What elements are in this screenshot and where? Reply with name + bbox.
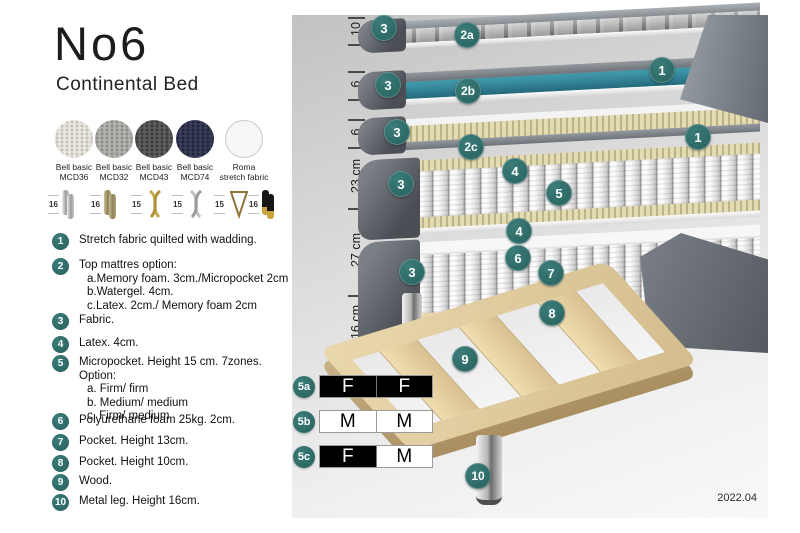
legend-item-9: 9 Wood. xyxy=(52,475,298,491)
legend-number: 6 xyxy=(52,413,69,430)
leg-height: 15 xyxy=(131,195,142,214)
fabric-swatch-image xyxy=(95,120,133,158)
legend-number: 3 xyxy=(52,313,69,330)
legend-label: Pocket. Height 13cm. xyxy=(79,435,188,451)
legend-number: 10 xyxy=(52,494,69,511)
firmness-cell: F xyxy=(320,376,377,397)
firmness-row-5b: 5b M M xyxy=(293,410,433,433)
legend-item-1: 1 Stretch fabric quilted with wadding. xyxy=(52,234,298,250)
legend-label: Pocket. Height 10cm. xyxy=(79,456,188,472)
diagram-badge-1: 1 xyxy=(649,57,675,83)
diagram-badge-3: 3 xyxy=(388,171,414,197)
leg-height: 15 xyxy=(214,195,225,214)
firmness-badge: 5a xyxy=(293,376,315,398)
firmness-cell: M xyxy=(377,411,433,432)
leg-option-gold-twist: 15 xyxy=(131,186,165,222)
legend-number: 9 xyxy=(52,474,69,491)
legend-number: 5 xyxy=(52,355,69,372)
chrome-leg-icon xyxy=(62,190,74,219)
fabric-swatch-image xyxy=(55,120,93,158)
diagram-badge-3: 3 xyxy=(384,119,410,145)
diagram-badge-1: 1 xyxy=(685,124,711,150)
fabric-swatch: Bell basicMCD74 xyxy=(175,120,215,182)
mattress-fabric-corner xyxy=(358,157,420,240)
legend-label: Fabric. xyxy=(79,314,114,330)
legend-item-7: 7 Pocket. Height 13cm. xyxy=(52,435,298,451)
legend-number: 4 xyxy=(52,336,69,353)
swatch-label: Bell basic xyxy=(177,162,213,172)
legend-label: Top mattres option: xyxy=(79,259,288,273)
legend-number: 2 xyxy=(52,258,69,275)
legend-sub-option: b.Watergel. 4cm. xyxy=(87,286,288,300)
swatch-label: Roma xyxy=(233,162,256,172)
leg-height: 16 xyxy=(48,195,59,214)
leg-option-wood: 16 xyxy=(90,186,116,222)
leg-height: 16 xyxy=(248,195,259,214)
diagram-badge-4: 4 xyxy=(506,218,532,244)
legend-item-6: 6 Polyurethane foam 25kg. 2cm. xyxy=(52,414,298,430)
fabric-swatch-image xyxy=(225,120,263,158)
legend-number: 1 xyxy=(52,233,69,250)
gold-twisted-leg-icon xyxy=(145,189,165,219)
diagram-badge-7: 7 xyxy=(538,260,564,286)
leg-option-silver-twist: 15 xyxy=(172,186,206,222)
legend-item-10: 10 Metal leg. Height 16cm. xyxy=(52,495,298,511)
legend-number: 8 xyxy=(52,455,69,472)
legend-item-4: 4 Latex. 4cm. xyxy=(52,337,298,353)
legend-label: Polyurethane foam 25kg. 2cm. xyxy=(79,414,235,430)
diagram-badge-2c: 2c xyxy=(458,134,484,160)
legend-label: Latex. 4cm. xyxy=(79,337,138,353)
legend-sub-option: b. Medium/ medium xyxy=(87,397,298,411)
fabric-swatch-image xyxy=(176,120,214,158)
legend-sub-option: c.Latex. 2cm./ Memory foam 2cm xyxy=(87,300,288,314)
firmness-row-5c: 5c F M xyxy=(293,445,433,468)
leg-height: 16 xyxy=(90,195,101,214)
black-gold-leg-icon xyxy=(262,190,274,219)
legend-number: 7 xyxy=(52,434,69,451)
version-date: 2022.04 xyxy=(717,492,757,504)
firmness-cell: F xyxy=(320,446,377,467)
firmness-badge: 5c xyxy=(293,446,315,468)
firmness-row-5a: 5a F F xyxy=(293,375,433,398)
diagram-badge-3: 3 xyxy=(375,72,401,98)
diagram-badge-3: 3 xyxy=(399,259,425,285)
firmness-badge: 5b xyxy=(293,411,315,433)
diagram-badge-9: 9 xyxy=(452,346,478,372)
diagram-badge-2b: 2b xyxy=(455,78,481,104)
firmness-cell: M xyxy=(320,411,377,432)
legend-label: Micropocket. Height 15 cm. 7zones. Optio… xyxy=(79,356,298,383)
legend-item-3: 3 Fabric. xyxy=(52,314,298,330)
firmness-cell: F xyxy=(377,376,433,397)
exploded-diagram-panel: 10 6 6 23 cm 27 cm 16 cm xyxy=(292,15,768,518)
silver-twisted-leg-icon xyxy=(186,189,206,219)
page-title: No6 xyxy=(54,16,149,71)
wood-leg-icon xyxy=(104,190,116,219)
diagram-badge-5: 5 xyxy=(546,180,572,206)
legend-item-8: 8 Pocket. Height 10cm. xyxy=(52,456,298,472)
legend-item-2: 2 Top mattres option: a.Memory foam. 3cm… xyxy=(52,259,298,313)
page-subtitle: Continental Bed xyxy=(56,74,199,96)
leg-option-chrome: 16 xyxy=(48,186,74,222)
diagram-badge-8: 8 xyxy=(539,300,565,326)
firmness-cell: M xyxy=(377,446,433,467)
legend-label: Wood. xyxy=(79,475,112,491)
fabric-swatch-image xyxy=(135,120,173,158)
diagram-badge-10: 10 xyxy=(465,463,491,489)
fabric-swatch: Romastretch fabric xyxy=(224,120,264,182)
legend-sub-option: a.Memory foam. 3cm./Micropocket 2cm xyxy=(87,273,288,287)
legend-sub-option: a. Firm/ firm xyxy=(87,383,298,397)
legend-label: Metal leg. Height 16cm. xyxy=(79,495,200,511)
legend-label: Stretch fabric quilted with wadding. xyxy=(79,234,257,250)
leg-option-hairpin: 15 xyxy=(214,186,250,222)
leg-height: 15 xyxy=(172,195,183,214)
leg-option-black-gold: 16 xyxy=(248,186,274,222)
diagram-badge-3: 3 xyxy=(371,15,397,41)
hairpin-leg-icon xyxy=(228,189,250,219)
diagram-badge-4: 4 xyxy=(502,158,528,184)
diagram-badge-6: 6 xyxy=(505,245,531,271)
diagram-badge-2a: 2a xyxy=(454,22,480,48)
product-sheet: No6 Continental Bed Bell basicMCD36 Bell… xyxy=(0,0,800,533)
